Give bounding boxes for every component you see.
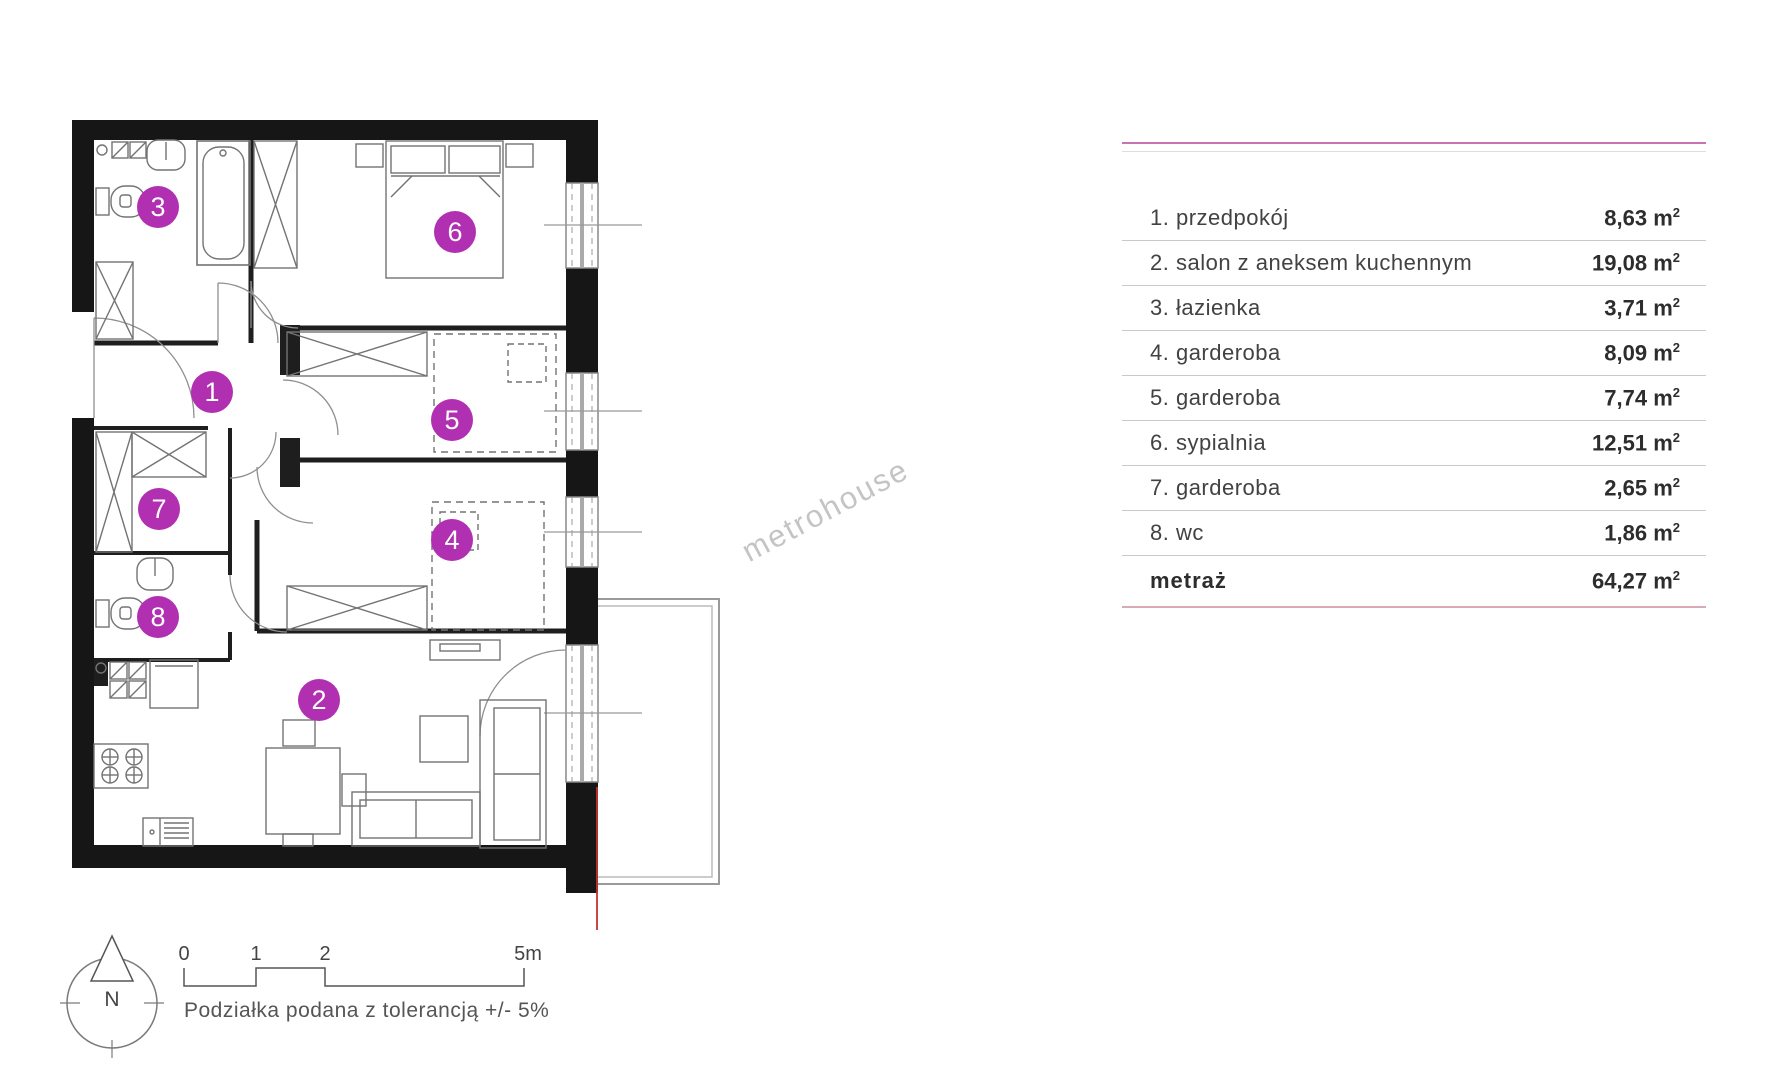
balcony — [597, 599, 719, 930]
bathroom-fixtures — [96, 140, 250, 339]
room-label: 4. garderoba — [1122, 340, 1281, 366]
scale-tick-0: 0 — [178, 943, 189, 965]
room-area: 12,51 m2 — [1592, 430, 1706, 456]
window-garderoba-5 — [544, 373, 642, 450]
scale-tolerance-note: Podziałka podana z tolerancją +/- 5% — [184, 999, 549, 1022]
room-badge-2: 2 — [298, 679, 340, 721]
room-area: 8,09 m2 — [1604, 340, 1706, 366]
room-label: 6. sypialnia — [1122, 430, 1266, 456]
room-badge-1: 1 — [191, 371, 233, 413]
room-badge-3: 3 — [137, 186, 179, 228]
scale-tick-5m: 5m — [514, 943, 542, 965]
garderoba5-furniture — [287, 332, 556, 452]
kitchen-living-furniture — [94, 640, 546, 848]
room-label: 8. wc — [1122, 520, 1204, 546]
room-label: 2. salon z aneksem kuchennym — [1122, 250, 1472, 276]
floor-plan: N 0 1 2 5m Podziałka podana z tolerancją… — [0, 0, 780, 1080]
legend-row-2: 2. salon z aneksem kuchennym 19,08 m2 — [1122, 241, 1706, 286]
legend-row-total: metraż 64,27 m2 — [1122, 556, 1706, 608]
total-area: 64,27 m2 — [1592, 568, 1706, 594]
scale-tick-1: 1 — [250, 943, 261, 965]
floor-plan-svg: N 0 1 2 5m Podziałka podana z tolerancją… — [0, 0, 780, 1080]
compass-north-label: N — [104, 988, 119, 1011]
north-arrow-icon — [91, 936, 133, 981]
room-label: 5. garderoba — [1122, 385, 1281, 411]
garderoba4-furniture — [287, 502, 544, 630]
scale-bar: 0 1 2 5m Podziałka podana z tolerancją +… — [178, 943, 549, 1022]
room-area: 19,08 m2 — [1592, 250, 1706, 276]
window-bedroom — [544, 183, 642, 268]
room-badge-4: 4 — [431, 519, 473, 561]
legend-top-rule — [1122, 142, 1706, 144]
legend-row-1: 1. przedpokój 8,63 m2 — [1122, 196, 1706, 241]
room-area: 1,86 m2 — [1604, 520, 1706, 546]
legend-row-3: 3. łazienka 3,71 m2 — [1122, 286, 1706, 331]
room-area: 7,74 m2 — [1604, 385, 1706, 411]
legend-row-6: 6. sypialnia 12,51 m2 — [1122, 421, 1706, 466]
room-badge-5: 5 — [431, 399, 473, 441]
scale-tick-2: 2 — [319, 943, 330, 965]
room-badge-8: 8 — [137, 596, 179, 638]
legend-row-8: 8. wc 1,86 m2 — [1122, 511, 1706, 556]
legend-row-4: 4. garderoba 8,09 m2 — [1122, 331, 1706, 376]
window-garderoba-4 — [544, 497, 642, 567]
legend-rows: 1. przedpokój 8,63 m2 2. salon z aneksem… — [1122, 196, 1706, 608]
legend-row-7: 7. garderoba 2,65 m2 — [1122, 466, 1706, 511]
room-badge-7: 7 — [138, 488, 180, 530]
legend-row-5: 5. garderoba 7,74 m2 — [1122, 376, 1706, 421]
room-label: 7. garderoba — [1122, 475, 1281, 501]
room-area: 8,63 m2 — [1604, 205, 1706, 231]
bedroom-furniture — [254, 141, 533, 278]
room-legend: 1. przedpokój 8,63 m2 2. salon z aneksem… — [1122, 142, 1706, 608]
room-area: 2,65 m2 — [1604, 475, 1706, 501]
total-label: metraż — [1122, 568, 1227, 594]
room-label: 3. łazienka — [1122, 295, 1261, 321]
room-label: 1. przedpokój — [1122, 205, 1289, 231]
compass: N — [60, 936, 164, 1058]
room-badge-6: 6 — [434, 211, 476, 253]
balcony-door — [544, 645, 642, 782]
legend-sub-rule — [1122, 151, 1706, 152]
room-area: 3,71 m2 — [1604, 295, 1706, 321]
